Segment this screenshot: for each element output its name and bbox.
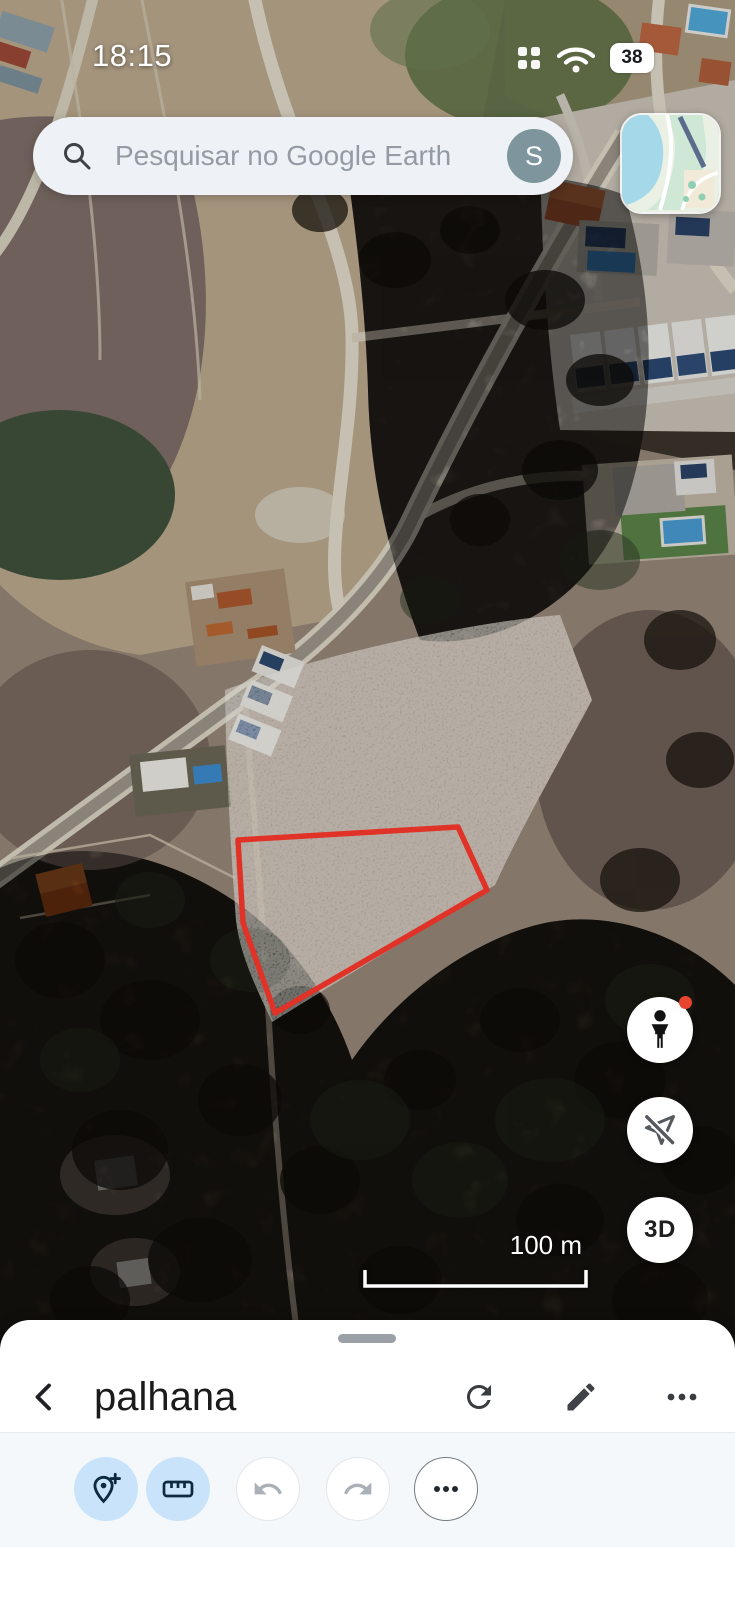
redo-icon — [342, 1473, 374, 1505]
thumbnail-map-preview — [622, 115, 719, 212]
back-chevron-icon[interactable] — [30, 1382, 56, 1412]
avatar-initial: S — [525, 141, 543, 172]
pegman-icon — [643, 1009, 677, 1051]
battery-percent: 38 — [621, 47, 642, 69]
account-avatar[interactable]: S — [507, 129, 561, 183]
undo-icon — [252, 1473, 284, 1505]
search-input[interactable]: Pesquisar no Google Earth — [115, 140, 507, 172]
refresh-icon[interactable] — [461, 1379, 497, 1415]
status-icons: 38 — [516, 42, 654, 74]
editing-toolbar — [0, 1433, 735, 1547]
scale-bar — [354, 1262, 599, 1292]
search-icon — [61, 140, 93, 172]
status-time: 18:15 — [92, 38, 172, 74]
bottom-sheet: palhana — [0, 1320, 735, 1600]
ruler-icon — [161, 1476, 195, 1502]
google-earth-screen: 18:15 38 Pesquisar no Google Earth S — [0, 0, 735, 1600]
grid-icon — [516, 45, 542, 71]
add-placemark-button[interactable] — [74, 1457, 138, 1521]
undo-button[interactable] — [236, 1457, 300, 1521]
search-bar[interactable]: Pesquisar no Google Earth S — [33, 117, 573, 195]
map-style-thumbnail[interactable] — [620, 113, 721, 214]
three-d-button[interactable]: 3D — [627, 1197, 693, 1263]
wifi-icon — [556, 42, 596, 74]
overflow-dots-icon — [431, 1477, 461, 1501]
more-options-icon[interactable] — [665, 1390, 699, 1404]
battery-indicator: 38 — [610, 43, 654, 73]
redo-button[interactable] — [326, 1457, 390, 1521]
project-title-row: palhana — [0, 1362, 735, 1432]
scale-label: 100 m — [470, 1230, 582, 1261]
navigation-off-icon — [642, 1112, 678, 1148]
toolbar-overflow-button[interactable] — [414, 1457, 478, 1521]
navigation-off-button[interactable] — [627, 1097, 693, 1163]
notification-dot — [679, 996, 692, 1009]
three-d-label: 3D — [644, 1216, 676, 1244]
project-title: palhana — [94, 1375, 461, 1420]
add-pin-icon — [90, 1472, 122, 1506]
measure-button[interactable] — [146, 1457, 210, 1521]
drag-handle[interactable] — [338, 1334, 396, 1343]
edit-pencil-icon[interactable] — [563, 1379, 599, 1415]
